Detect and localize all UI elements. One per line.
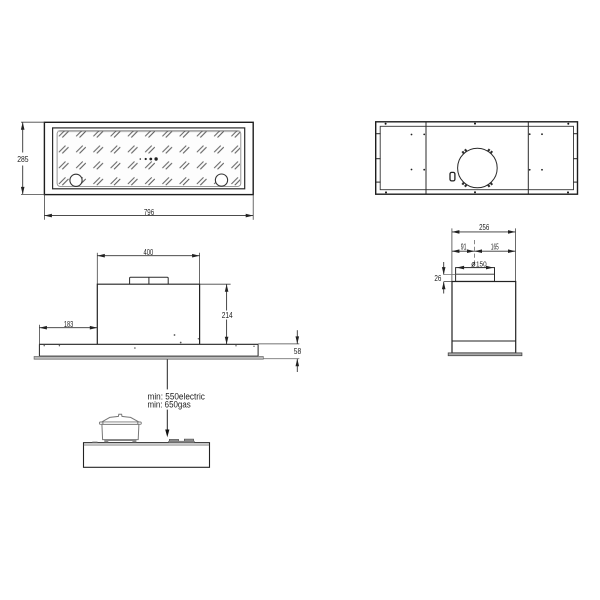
svg-text:400: 400 (144, 247, 154, 257)
svg-text:285: 285 (17, 154, 29, 164)
svg-text:min: 650gas: min: 650gas (148, 400, 192, 410)
svg-text:183: 183 (64, 319, 74, 329)
svg-text:150: 150 (476, 259, 487, 268)
svg-text:796: 796 (144, 207, 154, 217)
svg-text:26: 26 (434, 273, 441, 283)
svg-text:91: 91 (461, 242, 467, 252)
svg-text:256: 256 (479, 222, 489, 232)
svg-text:58: 58 (294, 346, 302, 356)
svg-text:214: 214 (222, 310, 233, 320)
svg-text:165: 165 (491, 242, 499, 252)
